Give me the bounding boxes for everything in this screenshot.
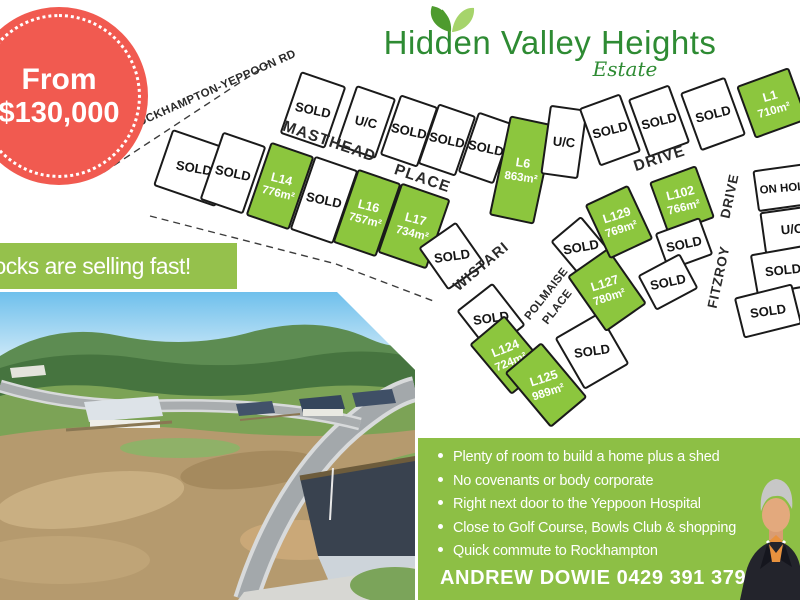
street-label-rockhampton-yeppoon-rd: ROCKHAMPTON-YEPPOON RD bbox=[128, 48, 298, 133]
lot-uc-6: U/C bbox=[541, 106, 586, 178]
badge-price: $130,000 bbox=[0, 98, 119, 130]
features-box: Plenty of room to build a home plus a sh… bbox=[418, 438, 800, 600]
lot-sold-9: SOLD bbox=[681, 78, 745, 150]
lot-sold-31: SOLD bbox=[735, 285, 800, 338]
street-label-drive: DRIVE bbox=[718, 172, 742, 219]
estate-subtitle: Estate bbox=[560, 57, 690, 81]
selling-fast-banner: Blocks are selling fast! bbox=[0, 243, 237, 289]
banner-text: Blocks are selling fast! bbox=[0, 243, 237, 289]
agent-photo bbox=[722, 450, 800, 600]
estate-title: Hidden Valley Heights bbox=[330, 24, 770, 62]
agent-face bbox=[762, 498, 790, 532]
flyer-root: SOLDU/CSOLDSOLDSOLDL6863m²U/CSOLDSOLDSOL… bbox=[0, 0, 800, 600]
lot-on_hold-28: ON HOLD bbox=[754, 163, 800, 211]
badge-prefix: From bbox=[22, 63, 97, 96]
leaf-icon bbox=[424, 2, 476, 40]
lot-label: U/C bbox=[552, 134, 576, 151]
lot-l1: L1710m² bbox=[737, 68, 800, 137]
lot-label: U/C bbox=[780, 220, 800, 237]
lot-uc-29: U/C bbox=[760, 205, 800, 253]
price-badge: From $130,000 bbox=[0, 7, 148, 185]
